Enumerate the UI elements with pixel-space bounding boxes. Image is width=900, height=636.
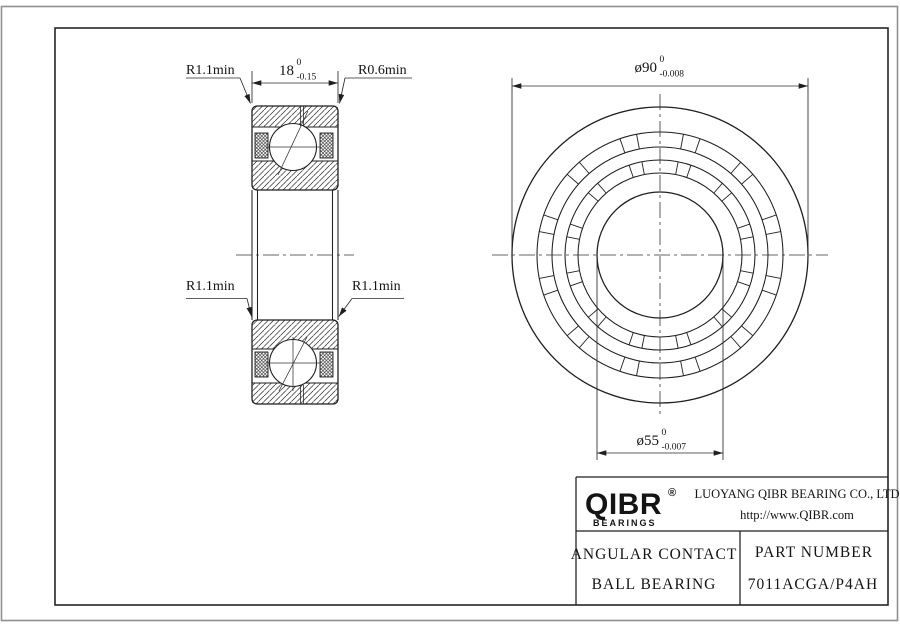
leader-radius-top-left: R1.1min <box>186 63 251 104</box>
cage-section-left-top <box>255 133 268 158</box>
od-dim-upper-tol: 0 <box>660 55 665 65</box>
width-dim-upper-tol: 0 <box>297 58 302 68</box>
bore-dim-value: ø55 <box>637 433 660 449</box>
cage-section-left-bottom <box>255 352 268 377</box>
width-dim-lower-tol: -0.15 <box>297 73 317 83</box>
leader-radius-top-right: R0.6min <box>340 63 413 104</box>
logo-tagline-text: BEARINGS <box>593 518 657 528</box>
cage-section-right-bottom <box>320 352 333 377</box>
bore-dim-upper-tol: 0 <box>662 428 667 438</box>
leader-radius-mid-right: R1.1min <box>339 279 404 317</box>
leader-radius-mid-left: R1.1min <box>186 279 252 317</box>
part-number-label: PART NUMBER <box>755 544 873 561</box>
section-view: 18 0 -0.15 R1.1min R0.6min R1.1min R1.1m… <box>186 58 412 404</box>
width-dim-value: 18 <box>279 63 294 79</box>
radius-mid-left-label: R1.1min <box>186 279 235 294</box>
front-view: ø90 0 -0.008 ø55 0 -0.007 <box>492 55 828 460</box>
part-number-value: 7011ACGA/P4AH <box>748 576 878 593</box>
bore-dim-lower-tol: -0.007 <box>662 443 687 453</box>
product-type-line2: BALL BEARING <box>592 576 717 593</box>
company-name: LUOYANG QIBR BEARING CO., LTD <box>694 487 899 501</box>
od-dim-lower-tol: -0.008 <box>660 70 685 80</box>
dimension-width: 18 0 -0.15 <box>252 58 338 103</box>
radius-mid-right-label: R1.1min <box>352 279 401 294</box>
drawing-sheet: 18 0 -0.15 R1.1min R0.6min R1.1min R1.1m… <box>0 0 900 636</box>
radius-top-left-label: R1.1min <box>186 63 235 78</box>
cage-section-right-top <box>320 133 333 158</box>
company-website: http://www.QIBR.com <box>740 508 854 522</box>
registered-trademark-icon: ® <box>668 487 676 499</box>
bottom-section <box>252 320 338 404</box>
product-type-line1: ANGULAR CONTACT <box>571 546 738 563</box>
top-section <box>252 106 338 190</box>
brand-logo: QIBR ® BEARINGS <box>585 487 676 528</box>
radius-top-right-label: R0.6min <box>358 63 407 78</box>
logo-brand-text: QIBR <box>585 488 662 521</box>
bearing-drawing: 18 0 -0.15 R1.1min R0.6min R1.1min R1.1m… <box>0 0 900 636</box>
title-block: QIBR ® BEARINGS LUOYANG QIBR BEARING CO.… <box>571 477 900 605</box>
od-dim-value: ø90 <box>635 60 658 76</box>
sheet-border <box>2 7 898 621</box>
